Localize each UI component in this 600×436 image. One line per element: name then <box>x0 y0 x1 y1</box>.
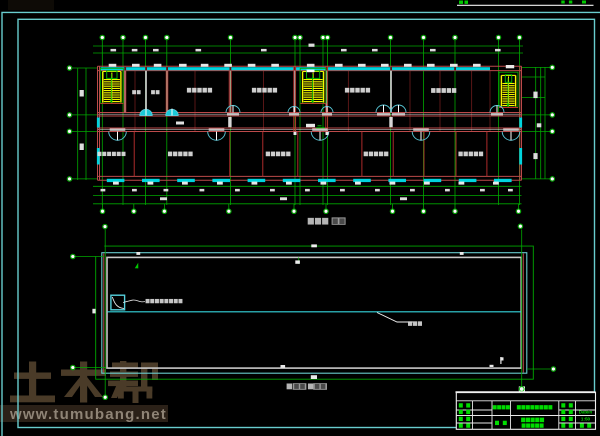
svg-text:1:50: 1:50 <box>581 417 591 422</box>
svg-text:Datein: Datein <box>579 410 593 415</box>
